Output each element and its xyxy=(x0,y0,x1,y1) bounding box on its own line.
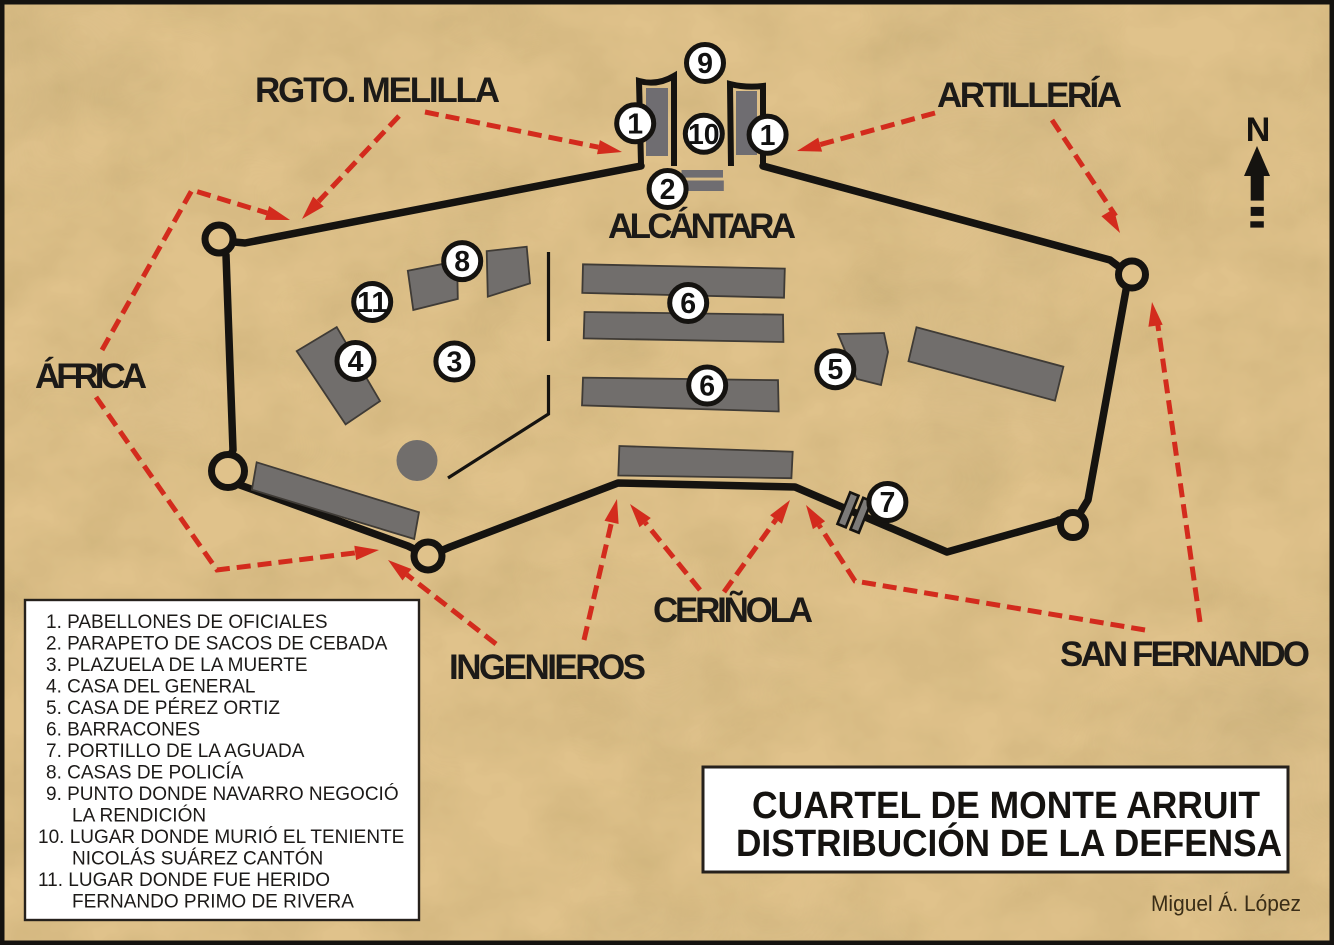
svg-text:5. CASA DE PÉREZ ORTIZ: 5. CASA DE PÉREZ ORTIZ xyxy=(46,698,280,719)
svg-text:3. PLAZUELA DE LA MUERTE: 3. PLAZUELA DE LA MUERTE xyxy=(46,655,308,676)
svg-text:CERIÑOLA: CERIÑOLA xyxy=(653,591,813,630)
svg-text:NICOLÁS SUÁREZ CANTÓN: NICOLÁS SUÁREZ CANTÓN xyxy=(72,848,323,870)
svg-text:ALCÁNTARA: ALCÁNTARA xyxy=(608,206,796,246)
svg-text:11: 11 xyxy=(357,287,387,319)
svg-text:7. PORTILLO DE LA AGUADA: 7. PORTILLO DE LA AGUADA xyxy=(46,741,305,762)
svg-text:ÁFRICA: ÁFRICA xyxy=(35,356,147,396)
svg-text:ARTILLERÍA: ARTILLERÍA xyxy=(937,75,1122,115)
svg-text:Miguel Á. López: Miguel Á. López xyxy=(1151,891,1301,916)
svg-text:FERNANDO PRIMO DE RIVERA: FERNANDO PRIMO DE RIVERA xyxy=(72,892,354,913)
svg-text:LA RENDICIÓN: LA RENDICIÓN xyxy=(72,805,206,827)
svg-text:7: 7 xyxy=(879,487,895,519)
svg-text:1: 1 xyxy=(627,108,643,140)
svg-text:8: 8 xyxy=(454,246,470,278)
svg-text:N: N xyxy=(1246,111,1271,149)
svg-text:RGTO. MELILLA: RGTO. MELILLA xyxy=(255,71,500,110)
svg-text:CUARTEL DE MONTE ARRUIT: CUARTEL DE MONTE ARRUIT xyxy=(752,785,1260,827)
svg-text:6: 6 xyxy=(680,288,696,320)
svg-text:2. PARAPETO DE SACOS DE CEBADA: 2. PARAPETO DE SACOS DE CEBADA xyxy=(46,634,388,655)
svg-text:DISTRIBUCIÓN DE LA DEFENSA: DISTRIBUCIÓN DE LA DEFENSA xyxy=(736,821,1282,865)
svg-text:1. PABELLONES DE OFICIALES: 1. PABELLONES DE OFICIALES xyxy=(46,612,328,633)
svg-text:1: 1 xyxy=(760,120,776,152)
svg-text:11. LUGAR DONDE FUE HERIDO: 11. LUGAR DONDE FUE HERIDO xyxy=(38,870,330,891)
svg-text:2: 2 xyxy=(660,174,676,206)
svg-text:10: 10 xyxy=(688,119,720,151)
svg-text:10. LUGAR DONDE MURIÓ EL TENIE: 10. LUGAR DONDE MURIÓ EL TENIENTE xyxy=(38,826,404,848)
svg-text:8. CASAS DE POLICÍA: 8. CASAS DE POLICÍA xyxy=(46,763,244,784)
svg-text:5: 5 xyxy=(827,354,843,386)
svg-text:9. PUNTO DONDE NAVARRO NEGOCIÓ: 9. PUNTO DONDE NAVARRO NEGOCIÓ xyxy=(46,783,399,805)
svg-text:6. BARRACONES: 6. BARRACONES xyxy=(46,720,200,741)
svg-text:SAN FERNANDO: SAN FERNANDO xyxy=(1060,635,1310,674)
svg-text:6: 6 xyxy=(699,371,715,403)
svg-text:3: 3 xyxy=(446,347,462,379)
svg-text:9: 9 xyxy=(697,48,713,80)
svg-text:INGENIEROS: INGENIEROS xyxy=(449,648,646,687)
svg-text:4: 4 xyxy=(348,346,364,378)
svg-text:4. CASA DEL GENERAL: 4. CASA DEL GENERAL xyxy=(46,677,255,698)
